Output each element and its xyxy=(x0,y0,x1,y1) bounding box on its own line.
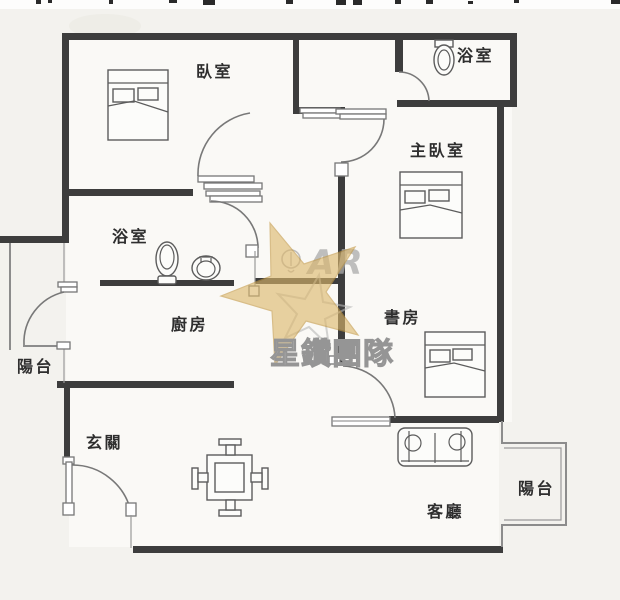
wall-kitchen-bottom xyxy=(57,381,234,388)
wall-hall-left xyxy=(64,385,70,464)
room-label-master-bedroom: 主臥室 xyxy=(410,141,466,160)
wall-upper-bath-stub xyxy=(395,38,403,72)
room-label-balcony-right: 陽台 xyxy=(518,479,555,498)
wall-right-upper xyxy=(510,33,517,107)
wall-bedroom-bottom xyxy=(62,189,193,196)
room-label-bathroom-upper: 浴室 xyxy=(457,46,494,65)
bed-master xyxy=(400,172,462,238)
wall-right-main xyxy=(497,101,504,422)
wall-bedroom-right xyxy=(293,33,299,113)
floor-plan: AR 星鑽團隊 臥室 浴室 主臥室 浴室 廚房 書房 陽台 玄關 客廳 陽台 xyxy=(0,0,620,600)
floor-plan-page: AR 星鑽團隊 臥室 浴室 主臥室 浴室 廚房 書房 陽台 玄關 客廳 陽台 xyxy=(0,0,620,600)
wall-bottom xyxy=(133,546,503,553)
wall-top xyxy=(62,33,517,40)
watermark-team-name: 星鑽團隊 xyxy=(270,337,394,372)
room-label-balcony-left: 陽台 xyxy=(17,357,54,376)
room-label-living-room: 客廳 xyxy=(427,502,464,521)
room-label-entry-hall: 玄關 xyxy=(86,433,123,452)
sink-middle-bathroom xyxy=(192,256,220,280)
wall-left-upper xyxy=(62,33,69,243)
room-label-bedroom: 臥室 xyxy=(196,62,233,81)
sofa xyxy=(398,428,472,466)
bed-bedroom xyxy=(108,70,168,140)
room-label-bathroom-middle: 浴室 xyxy=(112,227,149,246)
bed-study xyxy=(425,332,485,397)
top-white-band xyxy=(0,0,620,9)
room-label-kitchen: 廚房 xyxy=(171,315,208,334)
toilet-middle-bathroom xyxy=(156,242,178,284)
room-label-study: 書房 xyxy=(384,308,421,327)
toilet-upper-bathroom xyxy=(434,40,454,75)
wall-study-bottom xyxy=(389,416,499,423)
wall-balcony-left-top xyxy=(0,236,68,243)
